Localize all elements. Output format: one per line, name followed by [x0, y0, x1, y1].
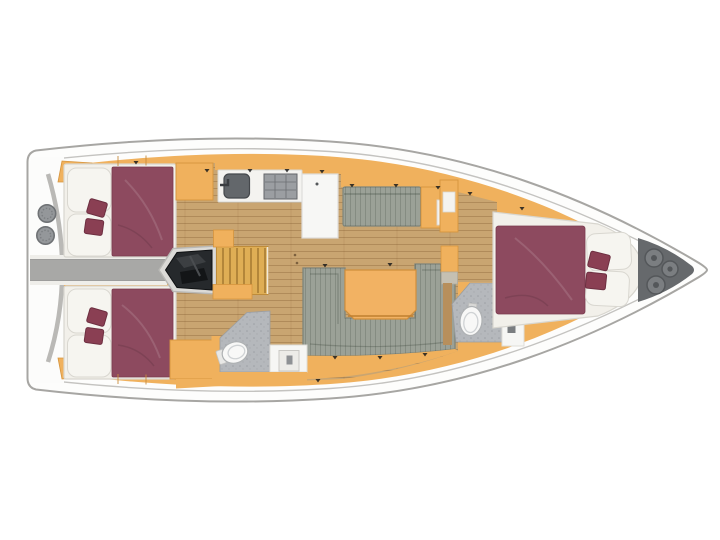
forward-bulkhead — [440, 180, 458, 284]
galley-stove — [264, 174, 297, 199]
floor-plan-canvas — [0, 0, 720, 540]
floor-fitting-dot — [296, 262, 299, 265]
head-wood-wall — [443, 283, 452, 345]
stairs-cabinet — [214, 230, 234, 247]
accent-cushion — [585, 272, 607, 290]
fridge-latch — [316, 183, 319, 186]
berth-duvet — [112, 167, 173, 256]
doorway-step — [442, 272, 458, 284]
rope-coil — [645, 249, 663, 267]
head-cabinet — [213, 285, 252, 300]
berth-duvet — [112, 289, 173, 377]
helm-circle-port — [38, 205, 55, 222]
fridge-counter — [302, 174, 338, 238]
bulkhead-door — [443, 192, 455, 212]
corridor-floor — [30, 260, 167, 281]
rope-coil — [662, 261, 678, 277]
wardrobe — [176, 163, 213, 200]
helm-circle-starboard — [37, 227, 54, 244]
accent-cushion — [84, 218, 104, 235]
rope-coil — [647, 276, 665, 294]
saloon-table — [345, 270, 416, 319]
accent-cushion — [84, 327, 104, 344]
wardrobe — [170, 340, 215, 379]
floor-fitting-dot — [294, 254, 297, 257]
yacht-layout-plan — [0, 0, 720, 540]
bulkhead-block — [441, 246, 458, 272]
aft-corridor — [30, 255, 167, 285]
faucet-icon — [287, 356, 293, 365]
